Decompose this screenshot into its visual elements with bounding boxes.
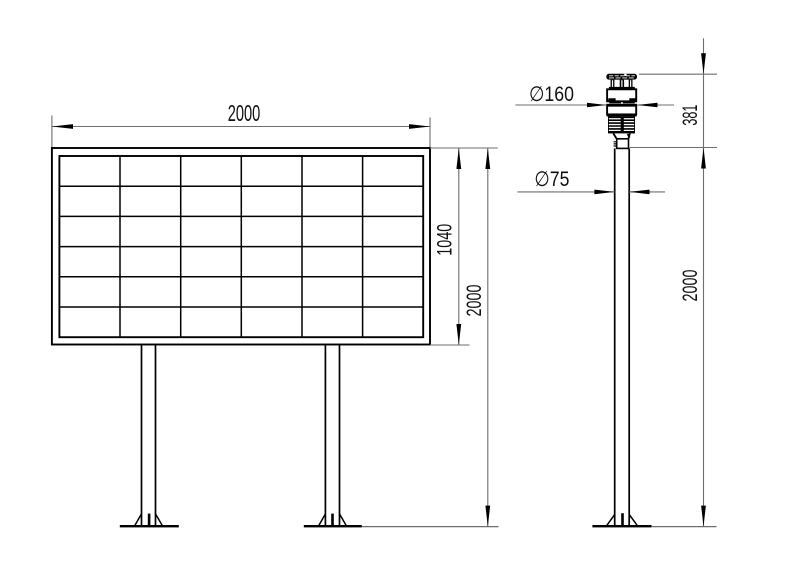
svg-text:∅75: ∅75 (534, 168, 569, 191)
svg-text:1040: 1040 (432, 224, 456, 256)
svg-text:2000: 2000 (228, 100, 261, 126)
svg-text:∅160: ∅160 (529, 83, 574, 106)
svg-text:2000: 2000 (462, 284, 486, 316)
svg-text:2000: 2000 (678, 269, 702, 301)
svg-text:381: 381 (678, 105, 702, 126)
